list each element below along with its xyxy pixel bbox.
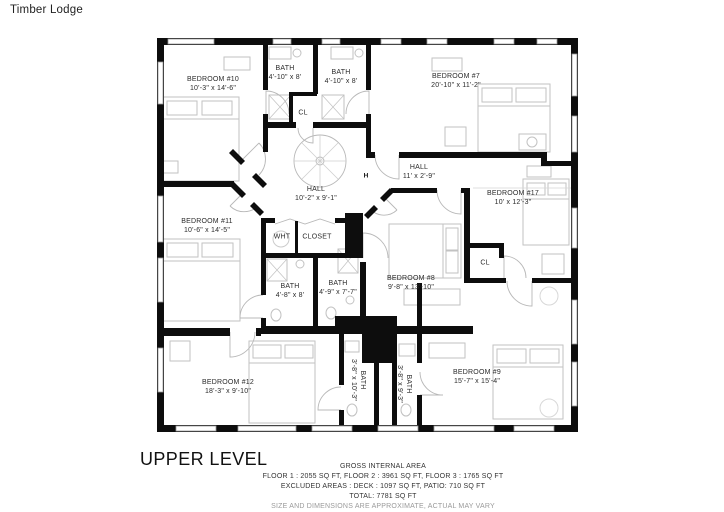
room-name: HALL bbox=[307, 185, 325, 194]
room-name: CL bbox=[298, 108, 307, 117]
room-label-hall-upper: HALL 11' x 2'-9" bbox=[403, 163, 435, 181]
room-name: BATH bbox=[404, 375, 413, 394]
room-name: CLOSET bbox=[302, 232, 331, 241]
sink bbox=[346, 296, 354, 304]
toilet bbox=[271, 309, 281, 321]
room-name: BATH bbox=[332, 68, 351, 77]
area-total-line: TOTAL: 7781 SQ FT bbox=[263, 492, 504, 502]
toilet bbox=[326, 307, 336, 319]
sink bbox=[345, 341, 359, 352]
room-label-hall-main: HALL 10'-2" x 9'-1" bbox=[295, 185, 337, 203]
vanity bbox=[331, 47, 353, 59]
room-label-water-heater: WHT bbox=[274, 232, 291, 241]
armoire bbox=[429, 343, 465, 358]
room-label-bedroom-10: BEDROOM #10 10'-3" x 14'-6" bbox=[187, 75, 239, 93]
room-label-bath-mid-left: BATH 4'-8" x 8' bbox=[276, 282, 305, 300]
room-label-closet-17: CL bbox=[480, 258, 489, 267]
room-name: HALL bbox=[410, 163, 428, 172]
room-label-bath-top-right: BATH 4'-10" x 8' bbox=[325, 68, 358, 86]
room-dims: 4'-10" x 8' bbox=[269, 73, 302, 82]
room-label-closet-main: CLOSET bbox=[302, 232, 331, 241]
room-name: CL bbox=[480, 258, 489, 267]
area-excluded-line: EXCLUDED AREAS : DECK : 1097 SQ FT, PATI… bbox=[263, 482, 504, 492]
room-name: BEDROOM #11 bbox=[181, 217, 232, 226]
ceiling-fixture bbox=[540, 287, 558, 305]
sink bbox=[399, 344, 415, 356]
area-title: GROSS INTERNAL AREA bbox=[263, 462, 504, 472]
room-dims: 10'-2" x 9'-1" bbox=[295, 194, 337, 203]
hall-h-marker: H bbox=[364, 173, 369, 180]
room-label-bedroom-12: BEDROOM #12 18'-3" x 9'-10" bbox=[202, 378, 254, 396]
room-name: BEDROOM #7 bbox=[432, 72, 480, 81]
room-name: BATH bbox=[358, 371, 367, 390]
room-label-bath-bottom-right: BATH 3'-8" x 9'-3" bbox=[395, 365, 413, 403]
room-name: BEDROOM #8 bbox=[387, 274, 435, 283]
room-dims: 15'-7" x 15'-4" bbox=[454, 377, 500, 386]
level-label: UPPER LEVEL bbox=[140, 449, 267, 470]
area-floors-line: FLOOR 1 : 2055 SQ FT, FLOOR 2 : 3961 SQ … bbox=[263, 472, 504, 482]
spiral-staircase-icon bbox=[294, 135, 346, 187]
chair bbox=[170, 341, 190, 361]
chair bbox=[542, 254, 564, 274]
vanity bbox=[269, 47, 291, 59]
room-dims: 4'-10" x 8' bbox=[325, 77, 358, 86]
toilet bbox=[347, 404, 357, 416]
room-label-bedroom-11: BEDROOM #11 10'-6" x 14'-5" bbox=[181, 217, 232, 235]
room-label-bedroom-17: BEDROOM #17 10' x 12'-3" bbox=[487, 189, 539, 207]
floor-plan: BEDROOM #10 10'-3" x 14'-6" BATH 4'-10" … bbox=[0, 0, 724, 512]
room-label-bedroom-7: BEDROOM #7 20'-10" x 11'-2" bbox=[431, 72, 481, 90]
room-label-bath-top-left: BATH 4'-10" x 8' bbox=[269, 64, 302, 82]
room-name: BEDROOM #9 bbox=[453, 368, 501, 377]
chair bbox=[445, 127, 466, 146]
dresser bbox=[527, 166, 551, 177]
room-dims: 18'-3" x 9'-10" bbox=[205, 387, 251, 396]
room-dims: 3'-8" x 9'-3" bbox=[395, 365, 404, 403]
room-name: BATH bbox=[281, 282, 300, 291]
room-name: BEDROOM #10 bbox=[187, 75, 239, 84]
room-dims: 10'-6" x 14'-5" bbox=[184, 226, 230, 235]
room-name: WHT bbox=[274, 232, 291, 241]
bifold-closet-doors bbox=[275, 219, 335, 224]
dresser bbox=[432, 58, 462, 71]
nightstand bbox=[163, 161, 178, 173]
room-label-closet-top: CL bbox=[298, 108, 307, 117]
sink bbox=[296, 260, 304, 268]
room-dims: 9'-8" x 13'-10" bbox=[388, 283, 434, 292]
room-dims: 4'-8" x 8' bbox=[276, 291, 305, 300]
area-disclaimer: SIZE AND DIMENSIONS ARE APPROXIMATE, ACT… bbox=[263, 502, 504, 512]
room-dims: 20'-10" x 11'-2" bbox=[431, 81, 481, 90]
room-label-bedroom-8: BEDROOM #8 9'-8" x 13'-10" bbox=[387, 274, 435, 292]
room-dims: 11' x 2'-9" bbox=[403, 172, 435, 181]
dresser bbox=[224, 57, 250, 70]
ceiling-fixture bbox=[540, 399, 558, 417]
room-name: BATH bbox=[329, 279, 348, 288]
room-label-bath-mid-right: BATH 4'-9" x 7'-7" bbox=[319, 279, 357, 297]
room-name: BATH bbox=[276, 64, 295, 73]
room-label-bath-bottom-left: BATH 3'-8" x 10'-3" bbox=[349, 359, 367, 401]
room-name: BEDROOM #17 bbox=[487, 189, 539, 198]
room-dims: 10' x 12'-3" bbox=[495, 198, 532, 207]
room-dims: 4'-9" x 7'-7" bbox=[319, 288, 357, 297]
area-summary: GROSS INTERNAL AREA FLOOR 1 : 2055 SQ FT… bbox=[263, 462, 504, 512]
room-label-bedroom-9: BEDROOM #9 15'-7" x 15'-4" bbox=[453, 368, 501, 386]
room-dims: 10'-3" x 14'-6" bbox=[190, 84, 236, 93]
room-dims: 3'-8" x 10'-3" bbox=[349, 359, 358, 401]
room-name: BEDROOM #12 bbox=[202, 378, 254, 387]
toilet bbox=[401, 404, 411, 416]
floor-plan-drawing bbox=[0, 0, 724, 512]
